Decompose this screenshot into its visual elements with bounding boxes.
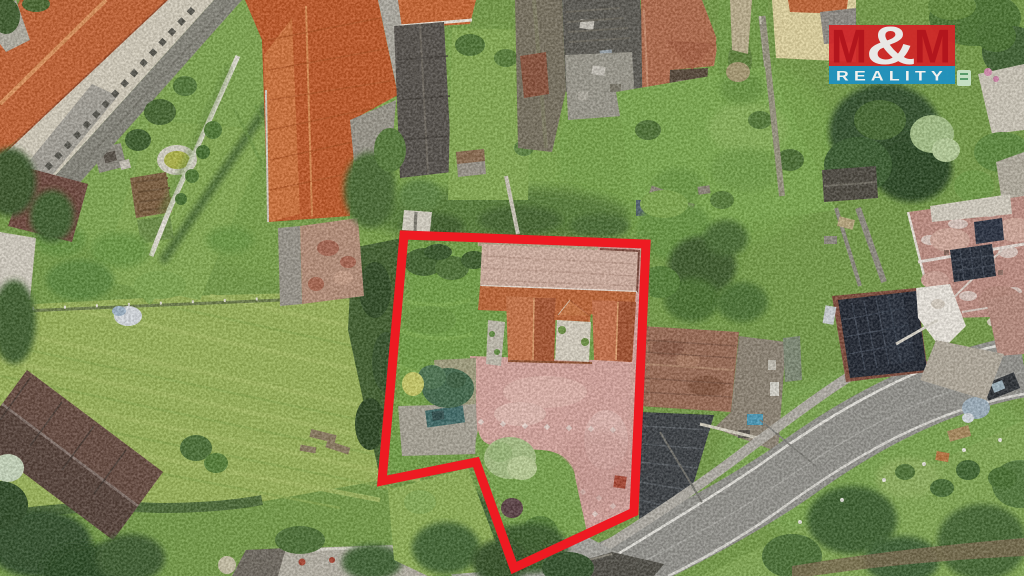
svg-text:M: M [914,20,951,73]
svg-text:M: M [831,20,867,73]
svg-text:REALITY: REALITY [836,69,948,84]
